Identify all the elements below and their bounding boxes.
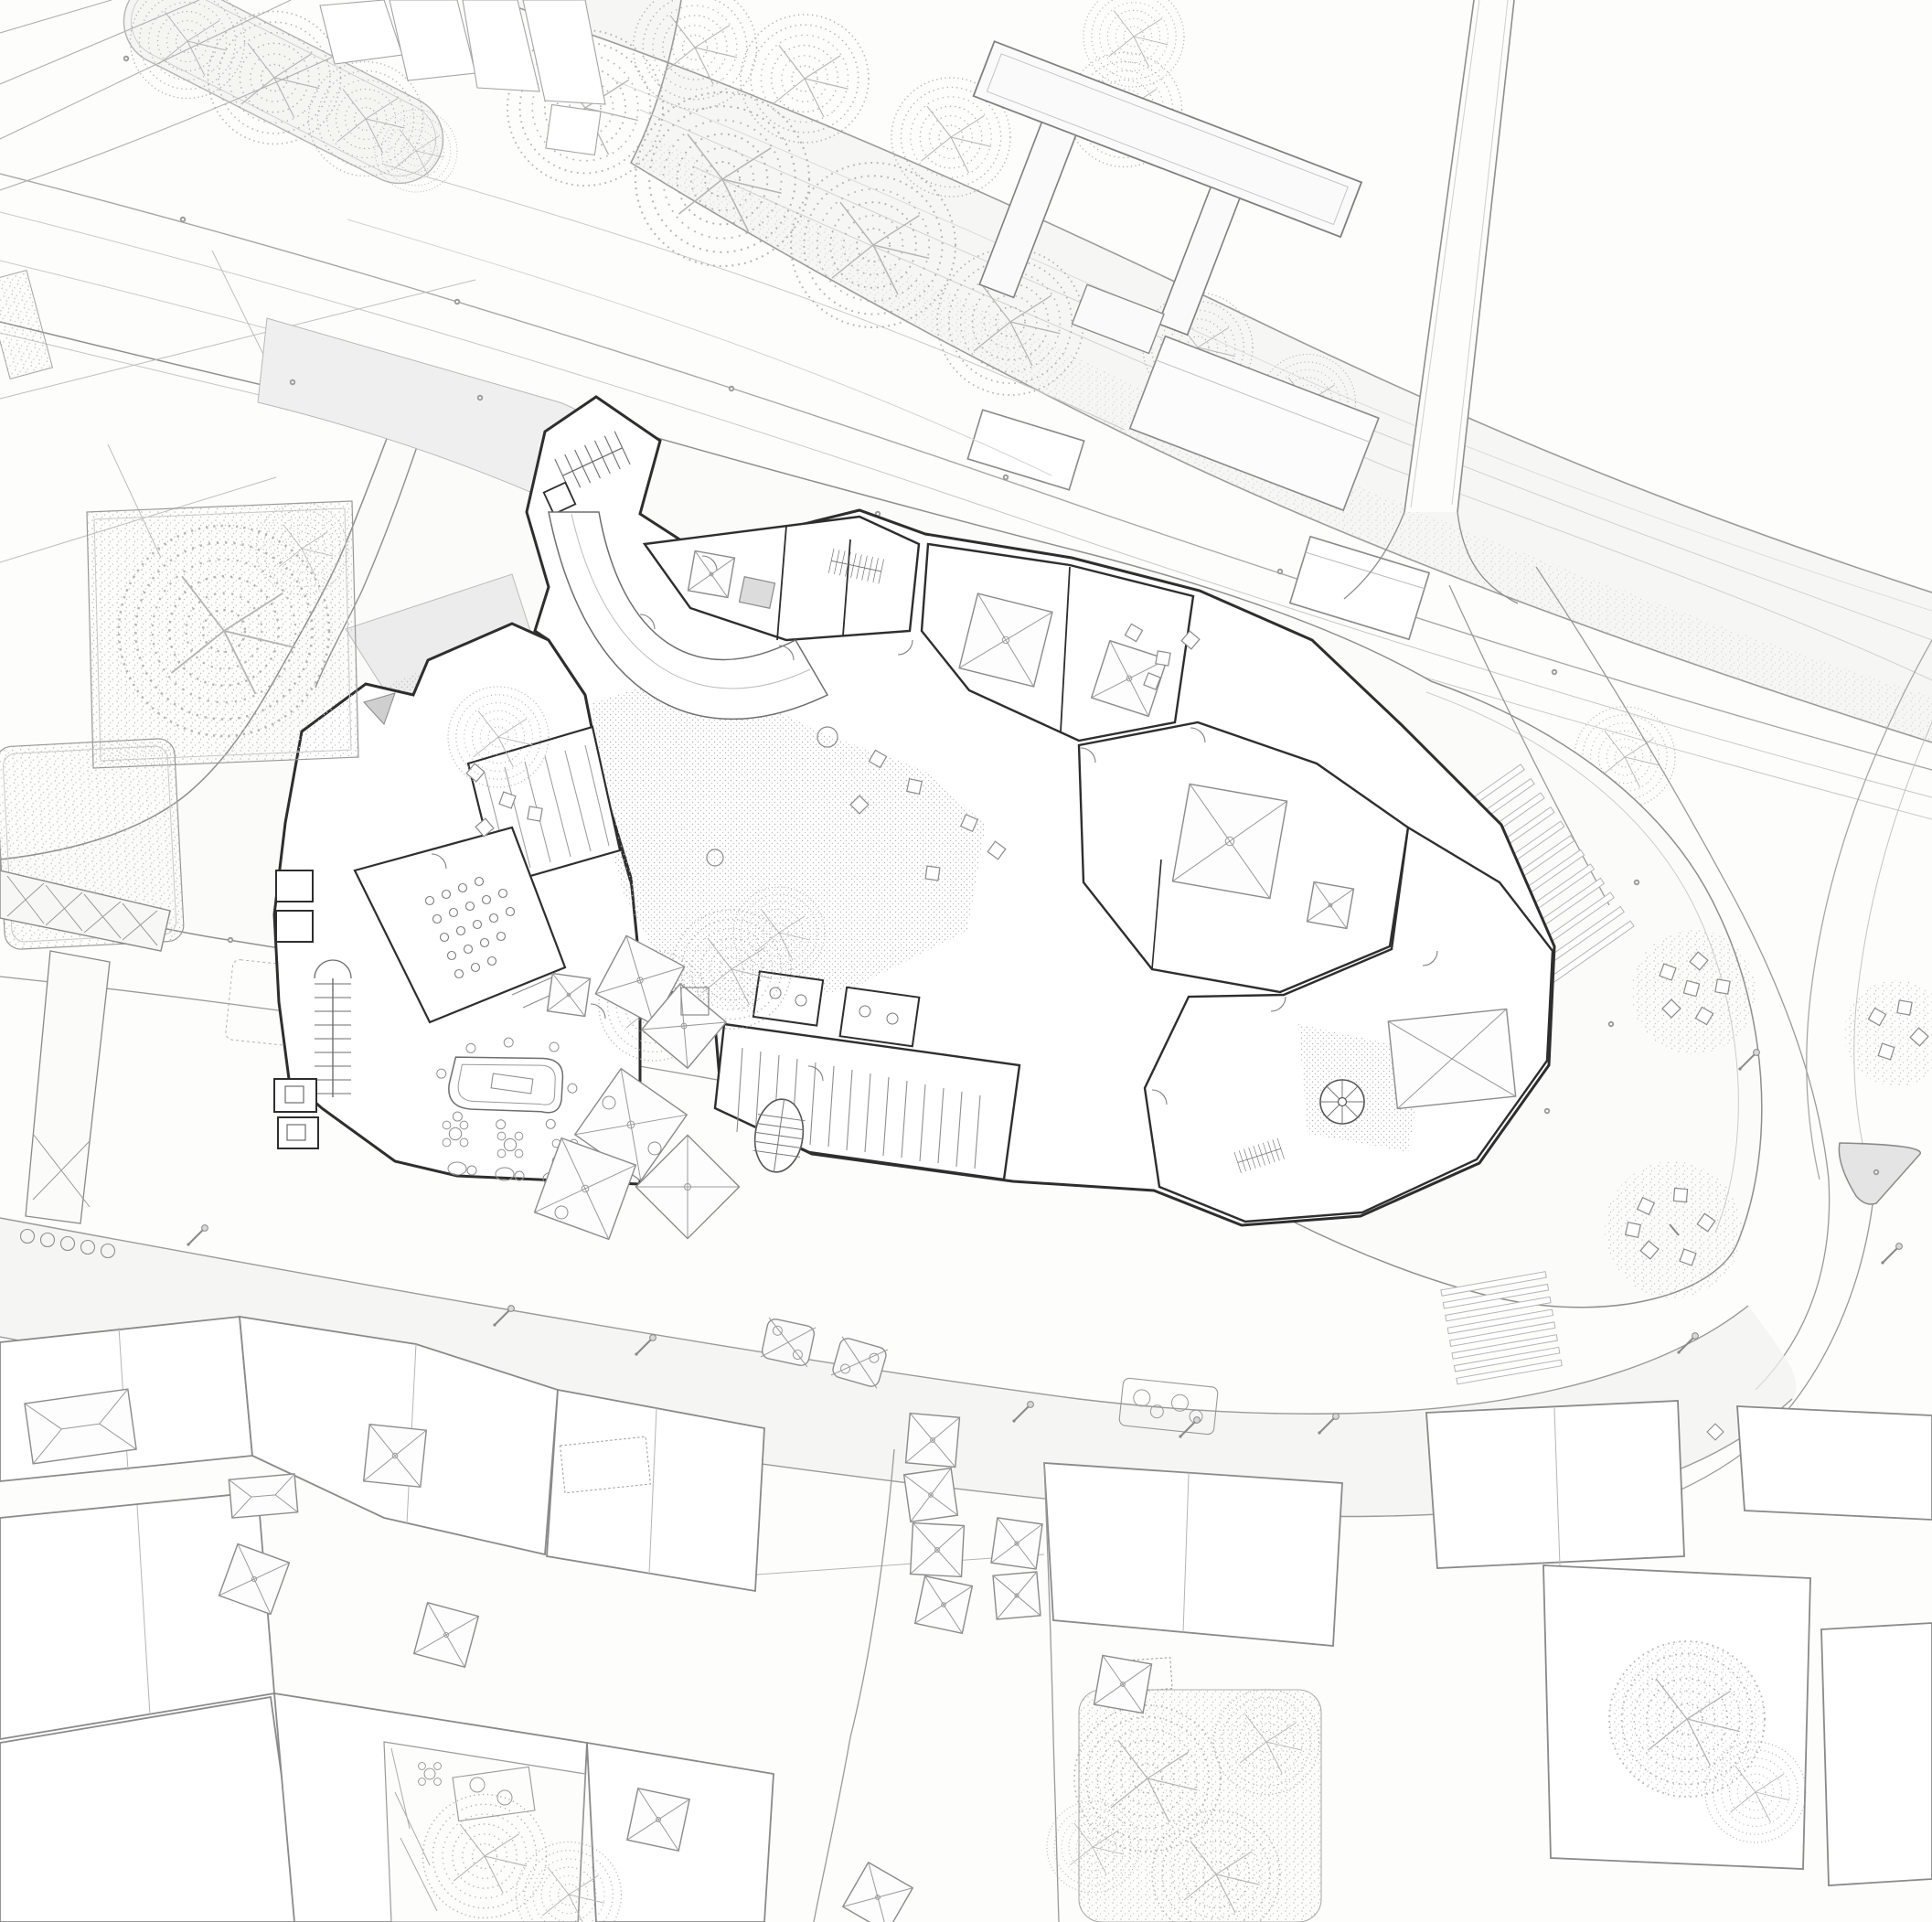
site-plan-drawing: Black and white architectural site plan:… (0, 0, 1932, 1922)
site-plan-canvas: Black and white architectural site plan:… (0, 0, 1932, 1922)
garden-plot (0, 271, 52, 379)
garden-plot (87, 501, 358, 768)
seating-circle (1631, 930, 1756, 1054)
triangle-traffic-island (1839, 1143, 1920, 1204)
seating-circle (1605, 1161, 1742, 1298)
courtyard-garden (1041, 1655, 1325, 1922)
avenue-kiosk (967, 410, 1083, 489)
